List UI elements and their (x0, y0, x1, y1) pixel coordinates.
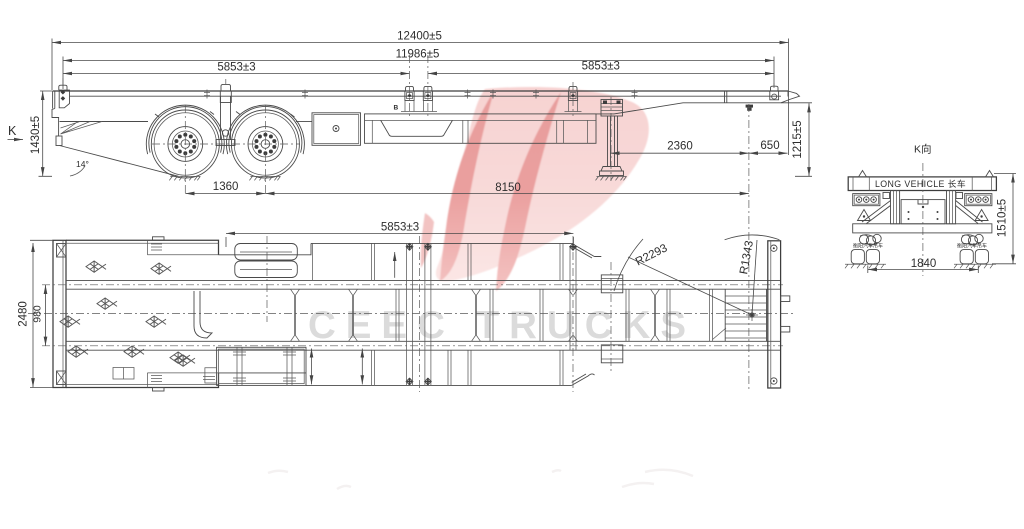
svg-text:1215±5: 1215±5 (792, 120, 804, 158)
svg-text:2360: 2360 (667, 141, 693, 153)
svg-text:5853±3: 5853±3 (582, 61, 620, 73)
svg-text:8150: 8150 (495, 182, 521, 194)
svg-text:K向: K向 (914, 143, 932, 156)
svg-text:2480: 2480 (18, 301, 30, 327)
svg-text:1360: 1360 (213, 181, 239, 193)
svg-text:12400±5: 12400±5 (397, 31, 442, 43)
svg-text:CEEC TRUCKS: CEEC TRUCKS (308, 304, 696, 347)
svg-text:1840: 1840 (911, 258, 937, 270)
svg-text:衡阳汽车吊车: 衡阳汽车吊车 (853, 243, 883, 250)
svg-text:11986±5: 11986±5 (396, 49, 440, 61)
svg-text:14°: 14° (76, 159, 89, 169)
svg-text:5853±3: 5853±3 (217, 62, 255, 74)
svg-text:LONG VEHICLE 长车: LONG VEHICLE 长车 (875, 178, 966, 189)
svg-text:980: 980 (32, 305, 44, 323)
svg-text:650: 650 (760, 140, 779, 152)
svg-text:1510±5: 1510±5 (997, 199, 1009, 237)
svg-text:衡阳汽车吊车: 衡阳汽车吊车 (957, 243, 987, 250)
svg-text:1430±5: 1430±5 (30, 116, 42, 154)
svg-text:B: B (394, 105, 399, 112)
svg-text:K: K (8, 124, 17, 138)
svg-text:5853±3: 5853±3 (381, 222, 419, 234)
